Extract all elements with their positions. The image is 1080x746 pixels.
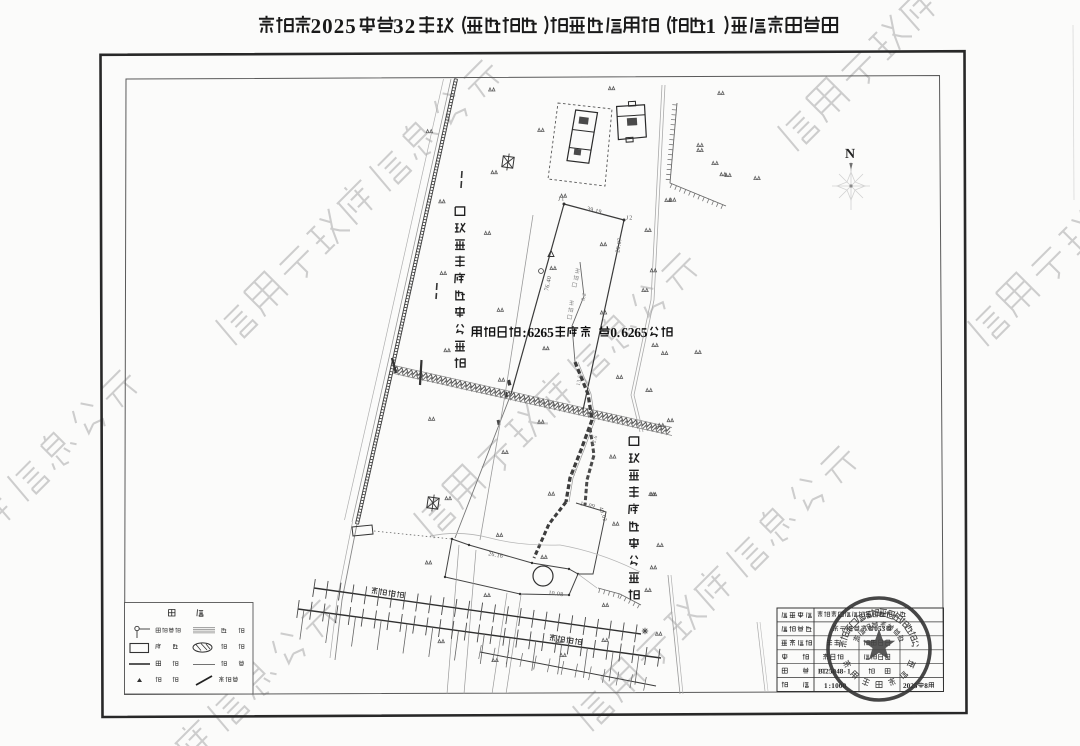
svg-text:.: .: [617, 325, 620, 340]
svg-text:1: 1: [561, 196, 564, 202]
svg-text:2: 2: [311, 14, 322, 38]
svg-text:2: 2: [405, 14, 416, 38]
svg-text:2: 2: [629, 215, 632, 221]
svg-text::: :: [522, 325, 527, 340]
svg-text:8: 8: [924, 682, 928, 690]
svg-text:5: 5: [345, 14, 356, 38]
svg-text:N: N: [845, 147, 855, 162]
svg-text:1: 1: [706, 14, 717, 38]
svg-text:5: 5: [547, 325, 554, 340]
svg-text:5: 5: [641, 325, 648, 340]
svg-text:3: 3: [882, 625, 886, 633]
svg-text:1: 1: [824, 682, 828, 690]
svg-text:2: 2: [334, 14, 345, 38]
svg-text:0: 0: [322, 14, 333, 38]
svg-text:3: 3: [393, 14, 404, 38]
